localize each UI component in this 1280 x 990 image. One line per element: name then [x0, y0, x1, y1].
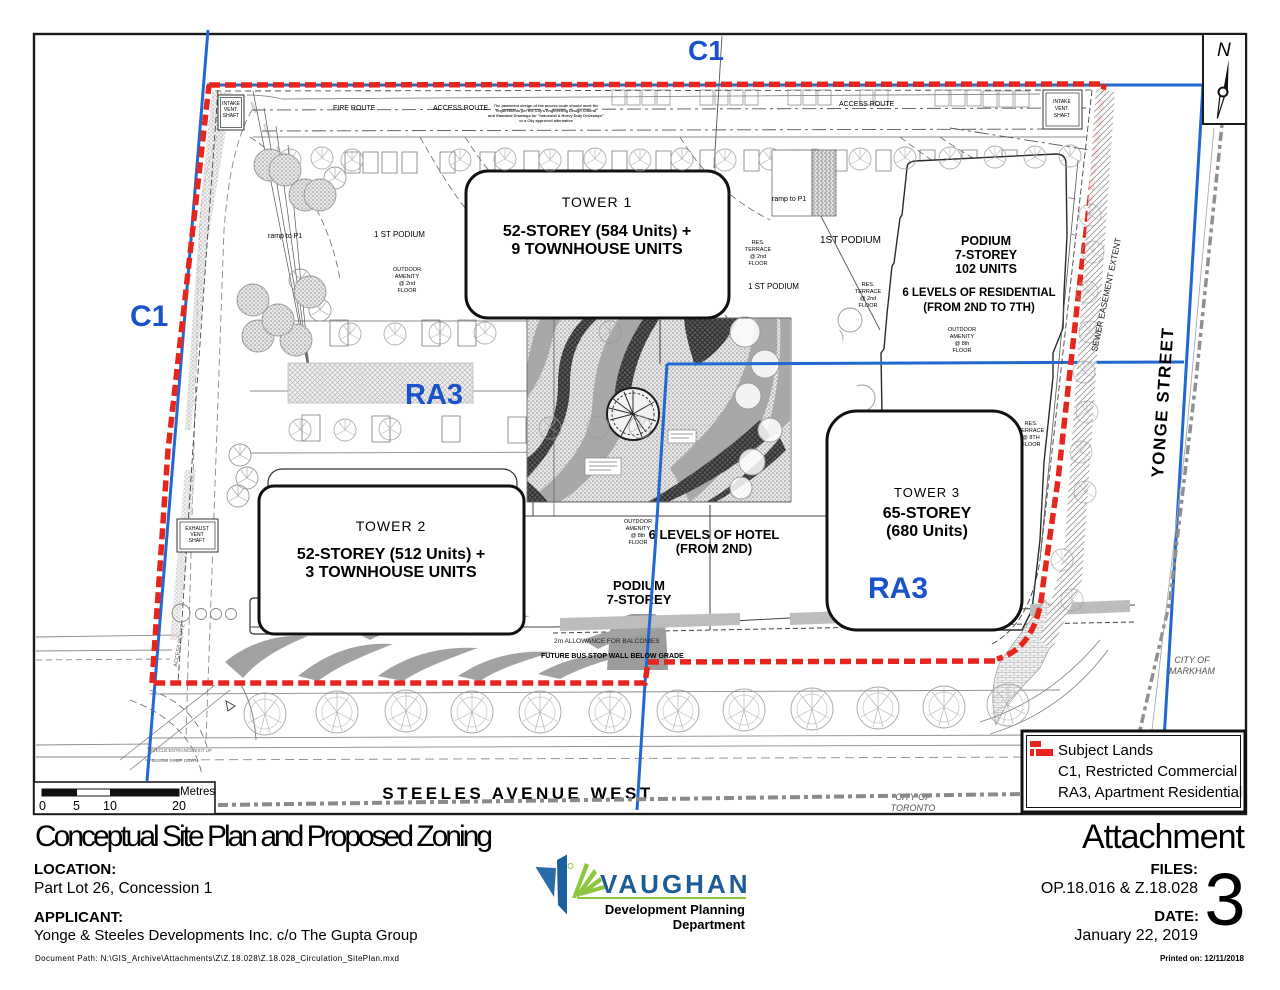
svg-text:VAUGHAN: VAUGHAN [600, 869, 748, 899]
svg-text:1 ST PODIUM: 1 ST PODIUM [748, 282, 799, 291]
svg-text:TERRACE: TERRACE [855, 289, 882, 295]
svg-text:FIRE ROUTE: FIRE ROUTE [333, 105, 376, 112]
svg-text:Document Path: N:\GIS_Archive\: Document Path: N:\GIS_Archive\Attachment… [35, 954, 399, 963]
svg-text:FLOOR: FLOOR [629, 540, 648, 546]
svg-text:TERRACE: TERRACE [745, 247, 772, 253]
svg-text:(680 Units): (680 Units) [886, 523, 968, 540]
svg-text:APPLICANT:: APPLICANT: [34, 909, 123, 926]
svg-text:65-STOREY: 65-STOREY [883, 505, 972, 522]
svg-text:OUTDOOR: OUTDOOR [948, 327, 976, 333]
svg-text:7-STOREY: 7-STOREY [607, 592, 672, 607]
svg-text:Yonge & Steeles Developments I: Yonge & Steeles Developments Inc. c/o Th… [34, 927, 418, 944]
svg-text:PODIUM: PODIUM [961, 234, 1011, 248]
svg-text:or a City approved alternative: or a City approved alternative [519, 119, 572, 123]
svg-text:SHAFT: SHAFT [223, 113, 239, 119]
svg-text:TOWER 3: TOWER 3 [894, 485, 960, 500]
svg-text:and Standard Drawings for "Ind: and Standard Drawings for "Industrial & … [488, 114, 604, 118]
svg-text:C1, Restricted Commercial: C1, Restricted Commercial [1058, 763, 1237, 780]
svg-text:FLOOR: FLOOR [953, 348, 972, 354]
svg-text:2m ALLOWANCE FOR BALCONIES: 2m ALLOWANCE FOR BALCONIES [554, 638, 660, 645]
svg-text:FLOOR: FLOOR [859, 303, 878, 309]
svg-text:ramp to P1: ramp to P1 [268, 233, 302, 240]
svg-text:AMENITY: AMENITY [950, 334, 975, 340]
svg-text:CITY OF: CITY OF [1174, 655, 1210, 665]
svg-text:1ST PODIUM: 1ST PODIUM [820, 235, 881, 246]
svg-text:OP.18.016 & Z.18.028: OP.18.016 & Z.18.028 [1041, 880, 1198, 897]
svg-text:TERRACE: TERRACE [1018, 428, 1045, 434]
svg-text:ACCESS ROUTE: ACCESS ROUTE [839, 101, 895, 108]
svg-text:TORONTO: TORONTO [891, 803, 936, 813]
svg-text:FLOOR: FLOOR [398, 288, 417, 294]
svg-text:ACCESS ROUTE: ACCESS ROUTE [433, 105, 489, 112]
svg-text:RA3, Apartment Residential: RA3, Apartment Residential [1058, 784, 1242, 801]
svg-text:@ 8th: @ 8th [631, 533, 646, 539]
svg-text:FUTURE BUS STOP WALL BELOW GRA: FUTURE BUS STOP WALL BELOW GRADE [541, 653, 684, 660]
svg-text:The pavement design of the acc: The pavement design of the access route … [494, 104, 599, 108]
svg-text:requirements per the City's En: requirements per the City's Engineering … [496, 109, 597, 113]
svg-text:Attachment: Attachment [1082, 818, 1246, 856]
svg-text:SHAFT: SHAFT [1054, 113, 1070, 119]
svg-text:VEHICLE ENTRANCE/EXIT UP: VEHICLE ENTRANCE/EXIT UP [148, 748, 212, 753]
svg-text:Department: Department [673, 917, 746, 932]
svg-text:@ 2nd: @ 2nd [860, 296, 876, 302]
svg-text:20: 20 [172, 799, 186, 813]
svg-text:FLOOR: FLOOR [1022, 442, 1041, 448]
svg-text:C1: C1 [130, 300, 168, 333]
svg-text:RES.: RES. [1025, 421, 1038, 427]
svg-text:C1: C1 [688, 35, 724, 66]
svg-text:INTAKE: INTAKE [1053, 99, 1071, 105]
svg-text:0: 0 [39, 799, 46, 813]
svg-text:FLOOR: FLOOR [749, 261, 768, 267]
svg-text:AMENITY: AMENITY [626, 526, 651, 532]
svg-text:ramp to P1: ramp to P1 [772, 196, 806, 203]
svg-text:6 LEVELS OF RESIDENTIAL: 6 LEVELS OF RESIDENTIAL [902, 287, 1055, 299]
svg-text:9 TOWNHOUSE UNITS: 9 TOWNHOUSE UNITS [511, 241, 683, 258]
svg-text:OUTDOOR: OUTDOOR [624, 519, 652, 525]
svg-text:3: 3 [1204, 858, 1245, 941]
svg-text:7-STOREY: 7-STOREY [955, 248, 1018, 262]
svg-text:52-STOREY (512 Units) +: 52-STOREY (512 Units) + [297, 546, 485, 563]
svg-text:SHAFT: SHAFT [189, 538, 205, 544]
svg-text:Conceptual Site Plan and Propo: Conceptual Site Plan and Proposed Zoning [35, 820, 493, 853]
svg-text:RA3: RA3 [868, 572, 928, 605]
svg-text:5: 5 [73, 799, 80, 813]
svg-text:BELOW RAMP DOWN: BELOW RAMP DOWN [152, 758, 198, 763]
svg-text:@ 2nd: @ 2nd [399, 281, 415, 287]
svg-text:3 TOWNHOUSE UNITS: 3 TOWNHOUSE UNITS [305, 564, 477, 581]
svg-text:TOWER 2: TOWER 2 [356, 518, 427, 534]
svg-text:AMENITY: AMENITY [395, 274, 420, 280]
svg-text:FILES:: FILES: [1151, 861, 1199, 878]
svg-text:@ 2nd: @ 2nd [750, 254, 766, 260]
svg-text:VENT.: VENT. [1055, 106, 1069, 112]
svg-text:MARKHAM: MARKHAM [1169, 666, 1216, 676]
svg-text:RES.: RES. [862, 282, 875, 288]
svg-text:(FROM 2ND): (FROM 2ND) [676, 541, 753, 556]
svg-text:Subject Lands: Subject Lands [1058, 742, 1153, 759]
svg-text:6 LEVELS OF HOTEL: 6 LEVELS OF HOTEL [649, 527, 780, 542]
svg-text:RES.: RES. [752, 240, 765, 246]
svg-text:RA3: RA3 [405, 379, 463, 411]
svg-text:TOWER 1: TOWER 1 [562, 194, 633, 210]
svg-text:OUTDOOR: OUTDOOR [393, 267, 421, 273]
svg-text:(FROM 2ND TO 7TH): (FROM 2ND TO 7TH) [923, 302, 1035, 314]
svg-text:@ 8th: @ 8th [955, 341, 970, 347]
svg-text:January 22, 2019: January 22, 2019 [1074, 927, 1198, 944]
svg-text:@ 8TH: @ 8TH [1022, 435, 1040, 441]
svg-text:1 ST PODIUM: 1 ST PODIUM [374, 230, 425, 239]
svg-text:LOCATION:: LOCATION: [34, 861, 116, 878]
svg-text:52-STOREY (584 Units) +: 52-STOREY (584 Units) + [503, 223, 691, 240]
svg-text:10: 10 [103, 799, 117, 813]
svg-text:Part Lot 26, Concession 1: Part Lot 26, Concession 1 [34, 880, 212, 897]
svg-text:DATE:: DATE: [1154, 908, 1199, 925]
svg-text:PODIUM: PODIUM [613, 578, 665, 593]
svg-text:N: N [1217, 40, 1231, 61]
svg-text:102 UNITS: 102 UNITS [955, 262, 1017, 276]
svg-text:Printed on: 12/11/2018: Printed on: 12/11/2018 [1160, 954, 1245, 963]
svg-text:Metres: Metres [180, 786, 215, 798]
svg-text:Development Planning: Development Planning [605, 902, 745, 917]
